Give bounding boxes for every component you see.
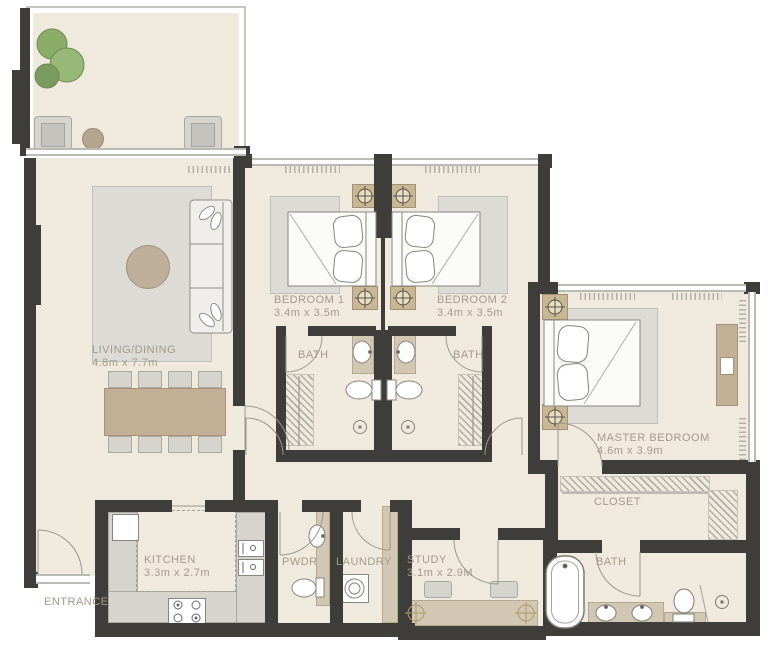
bedroom1-window xyxy=(252,158,374,166)
wall-segment xyxy=(24,158,36,578)
room-label-master-bath: BATH xyxy=(596,556,627,569)
wall-segment xyxy=(374,158,392,238)
fridge xyxy=(112,514,139,541)
dining-table xyxy=(104,388,226,436)
dining-chair xyxy=(108,371,132,388)
room-name: BATH xyxy=(453,349,484,362)
bedroom2-window xyxy=(392,158,538,166)
room-dims: 4.6m x 3.9m xyxy=(597,445,710,458)
closet-rail-top xyxy=(560,476,710,492)
wall-segment xyxy=(374,330,392,462)
study-stool xyxy=(424,581,452,598)
room-name: BEDROOM 1 xyxy=(274,294,345,307)
wall-segment xyxy=(640,540,750,553)
floorplan: LIVING/DINING 4.8m x 7.7m BEDROOM 1 3.4m… xyxy=(0,0,768,649)
balcony-slider-window xyxy=(26,148,246,156)
room-label-pwdr: PWDR xyxy=(282,556,318,569)
dining-chair xyxy=(138,436,162,453)
window-blind-mark xyxy=(672,293,722,300)
room-name: STUDY xyxy=(407,554,473,567)
dining-chair xyxy=(168,436,192,453)
wall-segment xyxy=(308,326,376,336)
bath1-wardrobe xyxy=(284,374,314,446)
wall-segment xyxy=(400,528,460,540)
wall-segment xyxy=(302,500,330,512)
wall-segment xyxy=(746,460,760,634)
dining-chair xyxy=(138,371,162,388)
pwdr-ledge xyxy=(316,506,330,606)
wall-segment xyxy=(398,626,546,640)
nightstand xyxy=(542,294,568,320)
room-name: MASTER BEDROOM xyxy=(597,432,710,445)
wall-segment xyxy=(390,500,398,512)
oven xyxy=(238,540,264,557)
room-name: BATH xyxy=(596,556,627,569)
stove xyxy=(168,598,206,625)
closet-rail-side xyxy=(708,490,738,540)
wall-segment xyxy=(265,500,278,635)
room-label-bath1: BATH xyxy=(298,349,329,362)
room-label-bedroom1: BEDROOM 1 3.4m x 3.5m xyxy=(274,294,345,320)
room-name: BEDROOM 2 xyxy=(437,294,508,307)
room-label-bedroom2: BEDROOM 2 3.4m x 3.5m xyxy=(437,294,508,320)
balcony-side-table xyxy=(82,128,104,150)
wall-segment xyxy=(276,450,492,462)
bedroom1-rug xyxy=(270,196,340,294)
dining-chair xyxy=(198,371,222,388)
room-name: CLOSET xyxy=(594,496,641,509)
window-blind-mark xyxy=(739,415,746,460)
room-dims: 4.8m x 7.7m xyxy=(92,357,176,370)
wall-segment xyxy=(482,326,492,462)
microwave xyxy=(238,559,264,576)
wall-segment xyxy=(538,158,550,292)
bath2-vanity xyxy=(394,330,416,374)
wall-segment xyxy=(95,500,108,635)
wall-segment xyxy=(498,528,545,540)
room-label-laundry: LAUNDRY xyxy=(336,556,392,569)
room-label-living-dining: LIVING/DINING 4.8m x 7.7m xyxy=(92,344,176,370)
study-desk xyxy=(402,600,538,626)
bedroom2-rug xyxy=(438,196,508,294)
nightstand xyxy=(390,184,416,208)
room-dims: 3.4m x 3.5m xyxy=(274,307,345,320)
room-dims: 3.3m x 2.7m xyxy=(144,567,210,580)
master-window-right xyxy=(748,292,756,462)
entrance-threshold xyxy=(36,574,90,584)
room-name: BATH xyxy=(298,349,329,362)
wall-segment xyxy=(543,622,760,636)
wall-pier xyxy=(12,70,25,144)
armchair-seat xyxy=(41,123,65,147)
wall-segment xyxy=(388,326,456,336)
nightstand xyxy=(390,286,416,310)
dresser-tv xyxy=(720,357,734,375)
room-label-bath2: BATH xyxy=(453,349,484,362)
wall-segment xyxy=(276,326,286,462)
room-label-master: MASTER BEDROOM 4.6m x 3.9m xyxy=(597,432,710,458)
room-label-kitchen: KITCHEN 3.3m x 2.7m xyxy=(144,554,210,580)
window-blind-mark xyxy=(188,166,232,173)
window-blind-mark xyxy=(285,166,340,173)
room-label-closet: CLOSET xyxy=(594,496,641,509)
coffee-table xyxy=(126,245,170,289)
room-name: KITCHEN xyxy=(144,554,210,567)
master-rug xyxy=(558,308,658,424)
wall-segment xyxy=(233,158,245,406)
washing-machine xyxy=(340,574,369,603)
wall-segment xyxy=(528,282,540,460)
window-blind-mark xyxy=(425,166,480,173)
wall-segment xyxy=(343,500,361,512)
nightstand xyxy=(542,404,568,430)
wall-segment xyxy=(543,528,557,634)
room-dims: 3.4m x 3.5m xyxy=(437,307,508,320)
bath1-vanity xyxy=(352,330,374,374)
master-window-top xyxy=(558,284,746,292)
room-name: ENTRANCE xyxy=(44,596,109,609)
room-dims: 3.1m x 2.9M xyxy=(407,567,473,580)
room-name: PWDR xyxy=(282,556,318,569)
study-stool xyxy=(490,581,518,598)
nightstand xyxy=(352,286,378,310)
window-blind-mark xyxy=(580,293,635,300)
wall-segment xyxy=(381,238,385,330)
dining-chair xyxy=(168,371,192,388)
dining-chair xyxy=(198,436,222,453)
room-label-study: STUDY 3.1m x 2.9M xyxy=(407,554,473,580)
wall-segment xyxy=(95,623,415,637)
window-blind-mark xyxy=(739,300,746,342)
room-name: LIVING/DINING xyxy=(92,344,176,357)
wall-pier xyxy=(24,225,41,305)
room-name: LAUNDRY xyxy=(336,556,392,569)
master-dresser xyxy=(716,324,738,406)
armchair-seat xyxy=(191,123,215,147)
wall-segment xyxy=(602,460,758,474)
dining-chair xyxy=(108,436,132,453)
room-label-entrance: ENTRANCE xyxy=(44,596,109,609)
